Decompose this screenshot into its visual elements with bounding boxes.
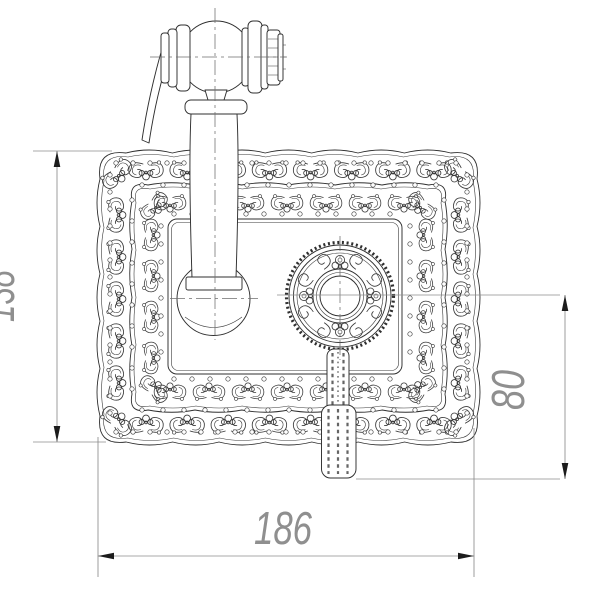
edge-bead xyxy=(392,408,396,412)
edge-bead xyxy=(130,198,134,202)
edge-bead xyxy=(420,161,424,165)
edge-bead xyxy=(408,242,412,246)
edge-bead xyxy=(140,408,144,412)
scroll-motif xyxy=(154,195,186,213)
edge-bead xyxy=(442,198,446,202)
edge-bead xyxy=(284,430,288,434)
edge-bead xyxy=(465,258,469,262)
edge-bead xyxy=(159,332,163,336)
edge-bead xyxy=(408,314,412,318)
edge-bead xyxy=(454,430,458,434)
edge-bead xyxy=(172,212,176,216)
edge-bead xyxy=(388,377,392,381)
edge-bead xyxy=(159,350,163,354)
edge-bead xyxy=(250,161,254,165)
edge-bead xyxy=(298,377,302,381)
scroll-motif xyxy=(293,161,327,180)
edge-bead xyxy=(280,377,284,381)
edge-bead xyxy=(148,430,152,434)
edge-bead xyxy=(408,260,412,264)
arrowhead-right-bottom xyxy=(562,463,569,479)
left-fitting-ring-large xyxy=(176,25,190,91)
edge-bead xyxy=(413,183,417,187)
scroll-motif xyxy=(349,383,381,401)
edge-bead xyxy=(159,314,163,318)
arrowhead-bottom-right xyxy=(458,553,474,560)
edge-bead xyxy=(131,161,135,165)
edge-bead xyxy=(437,161,441,165)
edge-bead xyxy=(287,408,291,412)
edge-bead xyxy=(140,183,144,187)
edge-bead xyxy=(262,212,266,216)
edge-bead xyxy=(442,240,446,244)
edge-bead xyxy=(370,212,374,216)
edge-bead xyxy=(408,278,412,282)
edge-bead xyxy=(371,183,375,187)
edge-bead xyxy=(352,161,356,165)
edge-bead xyxy=(280,212,284,216)
edge-bead xyxy=(130,387,134,391)
edge-bead xyxy=(465,207,469,211)
edge-bead xyxy=(465,377,469,381)
arrowhead-right-top xyxy=(562,295,569,311)
edge-bead xyxy=(165,161,169,165)
edge-bead xyxy=(388,212,392,216)
edge-bead xyxy=(369,161,373,165)
edge-bead xyxy=(130,303,134,307)
dimension-text-outlet-drop: 80 xyxy=(482,370,534,410)
edge-bead xyxy=(420,430,424,434)
edge-bead xyxy=(108,275,112,279)
scroll-motif xyxy=(404,189,439,224)
edge-bead xyxy=(130,240,134,244)
edge-bead xyxy=(130,282,134,286)
edge-bead xyxy=(199,430,203,434)
edge-bead xyxy=(369,430,373,434)
edge-bead xyxy=(454,161,458,165)
edge-bead xyxy=(465,292,469,296)
edge-bead xyxy=(108,173,112,177)
edge-bead xyxy=(442,387,446,391)
edge-bead xyxy=(161,183,165,187)
edge-bead xyxy=(442,303,446,307)
edge-bead xyxy=(465,173,469,177)
left-fitting-ring-small xyxy=(161,33,169,83)
edge-bead xyxy=(318,161,322,165)
edge-bead xyxy=(267,430,271,434)
edge-bead xyxy=(108,377,112,381)
edge-bead xyxy=(442,366,446,370)
edge-bead xyxy=(386,161,390,165)
edge-bead xyxy=(335,161,339,165)
edge-bead xyxy=(408,332,412,336)
edge-bead xyxy=(159,242,163,246)
edge-bead xyxy=(408,350,412,354)
edge-bead xyxy=(244,212,248,216)
edge-bead xyxy=(108,190,112,194)
scroll-motif xyxy=(417,301,435,333)
scroll-motif xyxy=(271,195,303,213)
technical-drawing-canvas: 138 80 186 xyxy=(0,0,600,600)
edge-bead xyxy=(465,360,469,364)
handle-collar xyxy=(185,100,247,114)
scroll-motif xyxy=(143,219,161,251)
edge-bead xyxy=(370,377,374,381)
edge-bead xyxy=(108,258,112,262)
edge-bead xyxy=(148,161,152,165)
edge-bead xyxy=(182,183,186,187)
edge-bead xyxy=(130,219,134,223)
edge-bead xyxy=(182,161,186,165)
edge-bead xyxy=(262,377,266,381)
edge-bead xyxy=(308,408,312,412)
spray-face xyxy=(278,34,283,81)
edge-bead xyxy=(224,408,228,412)
edge-bead xyxy=(182,408,186,412)
edge-bead xyxy=(245,183,249,187)
edge-bead xyxy=(108,360,112,364)
edge-bead xyxy=(301,430,305,434)
edge-bead xyxy=(434,408,438,412)
scroll-motif xyxy=(404,371,439,406)
edge-bead xyxy=(465,224,469,228)
scroll-motif xyxy=(310,195,342,213)
scroll-motif xyxy=(417,219,435,251)
edge-bead xyxy=(442,324,446,328)
edge-bead xyxy=(371,408,375,412)
edge-bead xyxy=(442,219,446,223)
edge-bead xyxy=(108,292,112,296)
edge-bead xyxy=(114,430,118,434)
edge-bead xyxy=(316,377,320,381)
dimension-text-plate-width: 186 xyxy=(254,502,312,554)
scroll-motif xyxy=(193,383,225,401)
edge-bead xyxy=(298,212,302,216)
edge-bead xyxy=(244,377,248,381)
edge-bead xyxy=(226,377,230,381)
edge-bead xyxy=(284,161,288,165)
edge-bead xyxy=(267,161,271,165)
edge-bead xyxy=(266,408,270,412)
edge-bead xyxy=(465,343,469,347)
scroll-motif xyxy=(417,260,435,292)
scroll-motif xyxy=(154,383,186,401)
edge-bead xyxy=(108,411,112,415)
edge-bead xyxy=(131,430,135,434)
edge-bead xyxy=(233,430,237,434)
sprayer-handle xyxy=(190,114,238,278)
edge-bead xyxy=(437,430,441,434)
edge-bead xyxy=(350,183,354,187)
edge-bead xyxy=(408,224,412,228)
edge-bead xyxy=(316,212,320,216)
edge-bead xyxy=(465,275,469,279)
edge-bead xyxy=(465,411,469,415)
edge-bead xyxy=(403,430,407,434)
edge-bead xyxy=(245,408,249,412)
edge-bead xyxy=(203,408,207,412)
edge-bead xyxy=(182,430,186,434)
edge-bead xyxy=(130,324,134,328)
edge-bead xyxy=(465,309,469,313)
holder-bracket xyxy=(186,277,242,290)
edge-bead xyxy=(108,394,112,398)
edge-bead xyxy=(165,430,169,434)
edge-bead xyxy=(114,161,118,165)
edge-bead xyxy=(301,161,305,165)
edge-bead xyxy=(159,296,163,300)
scroll-motif xyxy=(143,342,161,374)
edge-bead xyxy=(287,183,291,187)
edge-bead xyxy=(442,282,446,286)
edge-bead xyxy=(465,190,469,194)
scroll-motif xyxy=(143,301,161,333)
scroll-motif xyxy=(271,383,303,401)
edge-bead xyxy=(308,183,312,187)
edge-bead xyxy=(108,224,112,228)
edge-bead xyxy=(352,212,356,216)
edge-bead xyxy=(190,377,194,381)
scroll-motif xyxy=(232,383,264,401)
dimension-text-plate-height: 138 xyxy=(0,270,24,322)
edge-bead xyxy=(442,261,446,265)
edge-bead xyxy=(130,345,134,349)
edge-bead xyxy=(392,183,396,187)
edge-bead xyxy=(108,343,112,347)
edge-bead xyxy=(250,430,254,434)
arrowhead-bottom-left xyxy=(98,553,114,560)
edge-bead xyxy=(130,261,134,265)
edge-bead xyxy=(266,183,270,187)
edge-bead xyxy=(352,377,356,381)
edge-bead xyxy=(108,207,112,211)
edge-bead xyxy=(208,377,212,381)
scroll-motif xyxy=(417,342,435,374)
edge-bead xyxy=(329,183,333,187)
edge-bead xyxy=(408,296,412,300)
edge-bead xyxy=(130,366,134,370)
edge-bead xyxy=(159,278,163,282)
edge-bead xyxy=(334,212,338,216)
edge-bead xyxy=(465,326,469,330)
edge-bead xyxy=(465,394,469,398)
neck xyxy=(205,90,227,100)
edge-bead xyxy=(465,241,469,245)
edge-bead xyxy=(159,260,163,264)
edge-bead xyxy=(413,408,417,412)
edge-bead xyxy=(442,345,446,349)
arrowhead-left-bottom xyxy=(54,426,61,442)
scroll-motif xyxy=(143,260,161,292)
arrowhead-left-top xyxy=(54,151,61,167)
edge-bead xyxy=(172,377,176,381)
edge-bead xyxy=(216,430,220,434)
edge-bead xyxy=(161,408,165,412)
edge-bead xyxy=(108,241,112,245)
scroll-motif xyxy=(349,195,381,213)
edge-bead xyxy=(386,430,390,434)
edge-bead xyxy=(434,183,438,187)
edge-bead xyxy=(108,309,112,313)
edge-bead xyxy=(159,224,163,228)
edge-bead xyxy=(403,161,407,165)
edge-bead xyxy=(108,326,112,330)
